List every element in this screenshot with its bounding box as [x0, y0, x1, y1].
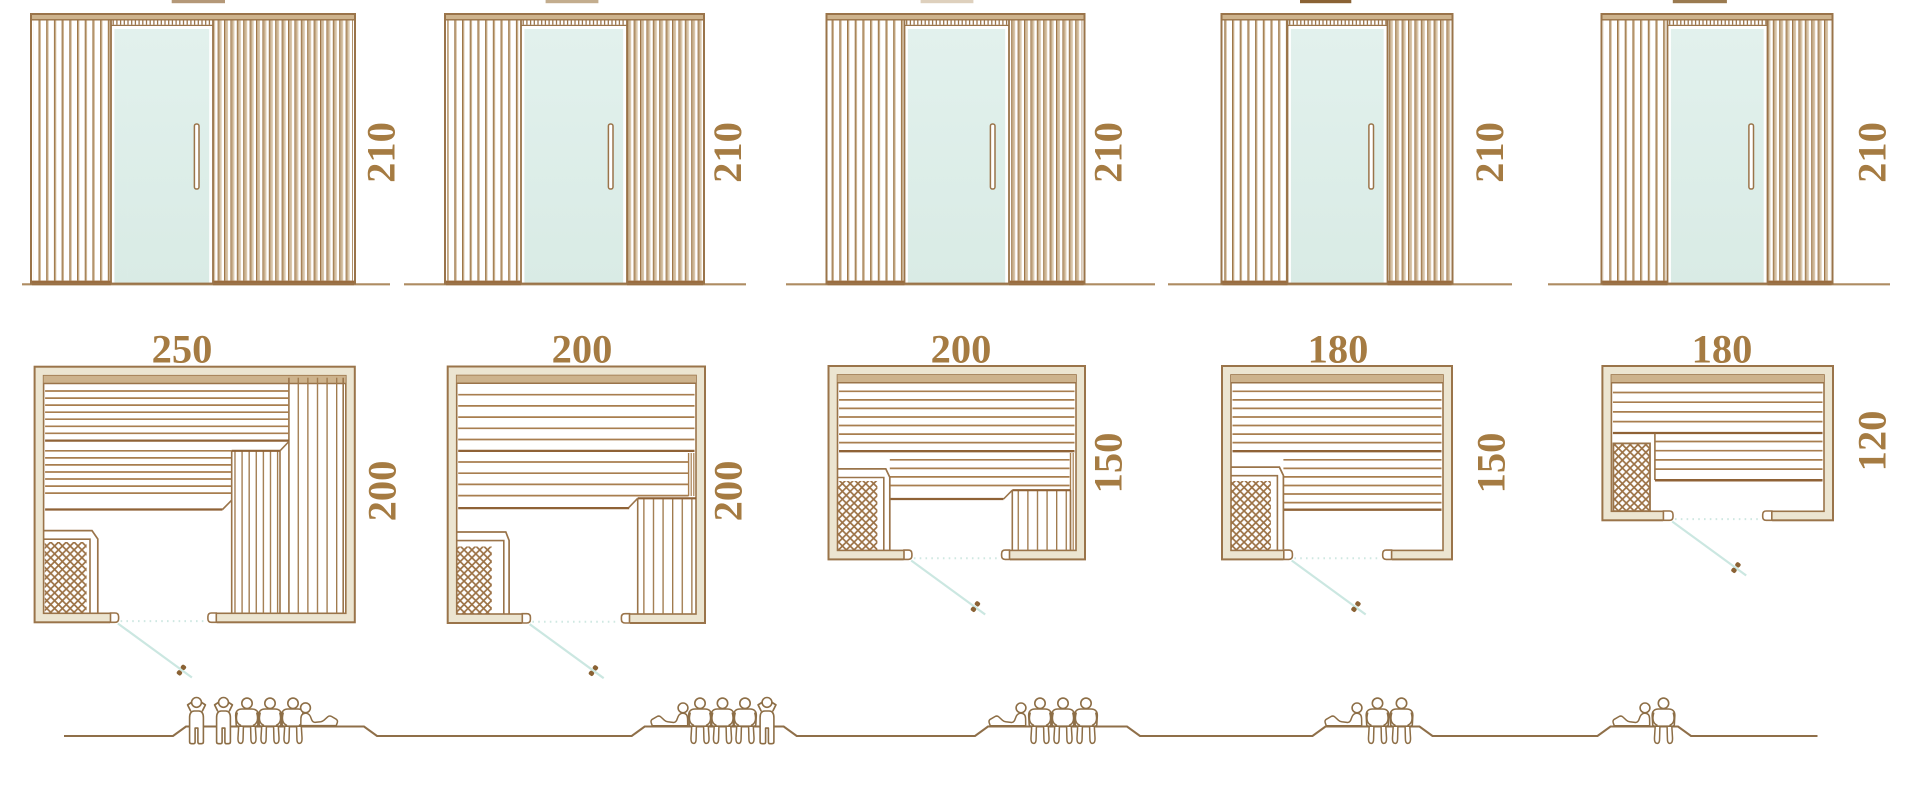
svg-text:210: 210: [705, 122, 750, 183]
svg-text:200: 200: [706, 461, 751, 522]
svg-text:200: 200: [552, 326, 613, 371]
svg-text:210: 210: [359, 122, 404, 183]
svg-text:120: 120: [1850, 411, 1895, 472]
svg-text:210: 210: [1850, 122, 1895, 183]
svg-text:210: 210: [1467, 122, 1512, 183]
svg-text:200: 200: [360, 461, 405, 522]
svg-text:180: 180: [1308, 326, 1369, 371]
svg-text:200: 200: [931, 326, 992, 371]
svg-text:250: 250: [152, 326, 213, 371]
svg-text:180: 180: [1692, 326, 1753, 371]
svg-text:210: 210: [1086, 122, 1131, 183]
svg-text:150: 150: [1086, 433, 1131, 494]
svg-text:150: 150: [1469, 433, 1514, 494]
